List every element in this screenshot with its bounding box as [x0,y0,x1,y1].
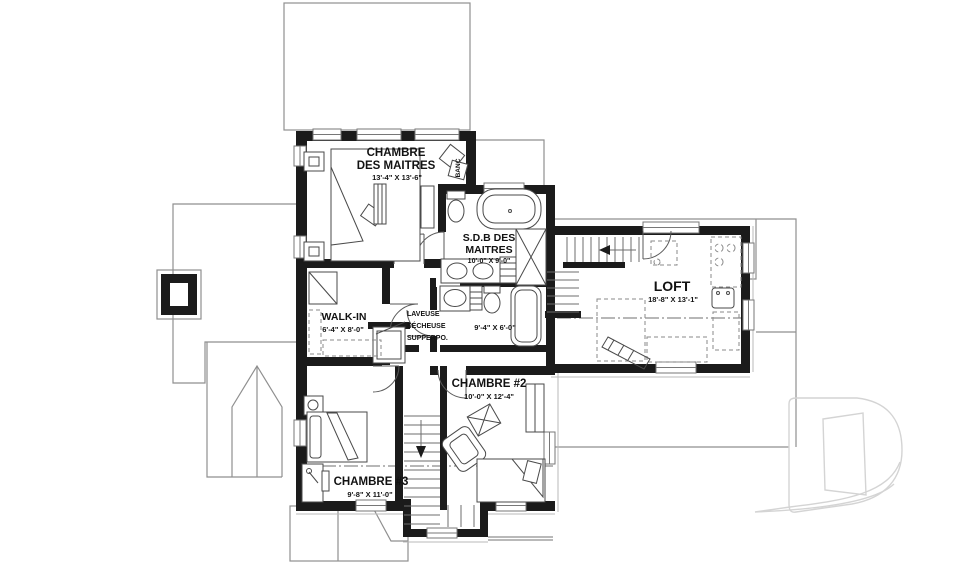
loft-sofa-2 [647,337,707,362]
stair-rail [563,262,625,268]
pillow [310,416,321,458]
stair-landing [448,505,474,527]
toilet [484,293,500,313]
wall [296,357,382,366]
bathtub-inner [483,195,535,223]
bathtub-2-inner [515,290,537,342]
window [743,300,754,330]
label-master-bedroom-2: DES MAITRES [357,160,436,172]
toilet-tank [484,286,500,293]
label-walk-in-dims: 6'-4" X 8'-0" [322,325,364,334]
window [313,129,341,140]
window [357,129,401,140]
wall [551,364,750,373]
label-master-bedroom-dims: 13'-4" X 13'-6" [372,173,422,182]
window [415,129,459,140]
window [294,420,306,446]
sink [473,263,493,279]
wall [438,192,446,232]
toilet-tank [447,191,465,199]
roof-outline-top [284,3,470,130]
closet-rod [309,310,321,354]
label-walk-in: WALK-IN [322,311,367,323]
sink [447,263,467,279]
label-laundry-1: LAVEUSE [407,311,440,318]
dresser-detail [309,157,319,166]
label-bedroom-3: CHAMBRE #3 [334,476,409,488]
window [356,500,386,511]
sink [444,290,466,307]
wall [382,267,390,304]
wall [395,366,403,510]
desk [302,464,323,502]
label-bathroom-2-dims: 9'-4" X 6'-0" [474,323,516,332]
toilet [448,200,464,222]
wall [430,366,438,375]
label-bedroom-2: CHAMBRE #2 [452,378,527,390]
label-master-bath-2: MAITRES [465,244,512,256]
wall [430,287,437,310]
wall [466,366,555,375]
window [656,362,696,373]
window [544,432,555,464]
loft-chair [654,259,660,265]
chimney [157,270,201,319]
watermark-d-logo [755,398,902,512]
door-loft [643,231,671,259]
label-master-bath-dims: 10'-0" X 9'-0" [468,258,511,265]
window [427,528,457,538]
furniture [302,144,741,502]
loft-kitchenette [711,237,741,287]
label-loft: LOFT [654,278,691,294]
bed-headboard [374,184,386,224]
label-master-bath-1: S.D.B DES [463,232,516,244]
closet-shelf [323,340,381,356]
loft-stove [712,288,734,308]
loft-sofa [597,299,645,361]
label-laundry-2: SÉCHEUSE [407,321,446,330]
bench-seat [421,186,434,228]
label-laundry-3: SUPPERPO. [407,335,448,342]
roof-gable [207,342,282,477]
window [743,243,754,273]
nightstand-lamp [308,400,318,410]
floor-plan-drawing: CHAMBRE DES MAITRES 13'-4" X 13'-6" BANC… [0,0,960,569]
label-master-bedroom-1: CHAMBRE [367,147,426,159]
wall [430,278,436,287]
label-bedroom-2-dims: 10'-0" X 12'-4" [464,392,514,401]
label-bedroom-3-dims: 9'-8" X 11'-0" [347,490,393,499]
desk-chair [322,471,329,491]
label-bench: BANC [455,158,462,177]
label-loft-dims: 18'-8" X 13'-1" [648,295,698,304]
floor-plan-canvas: CHAMBRE DES MAITRES 13'-4" X 13'-6" BANC… [0,0,960,569]
dresser-detail [309,247,319,256]
loft-table [651,241,677,265]
stair-arrow-head-loft [599,245,610,255]
